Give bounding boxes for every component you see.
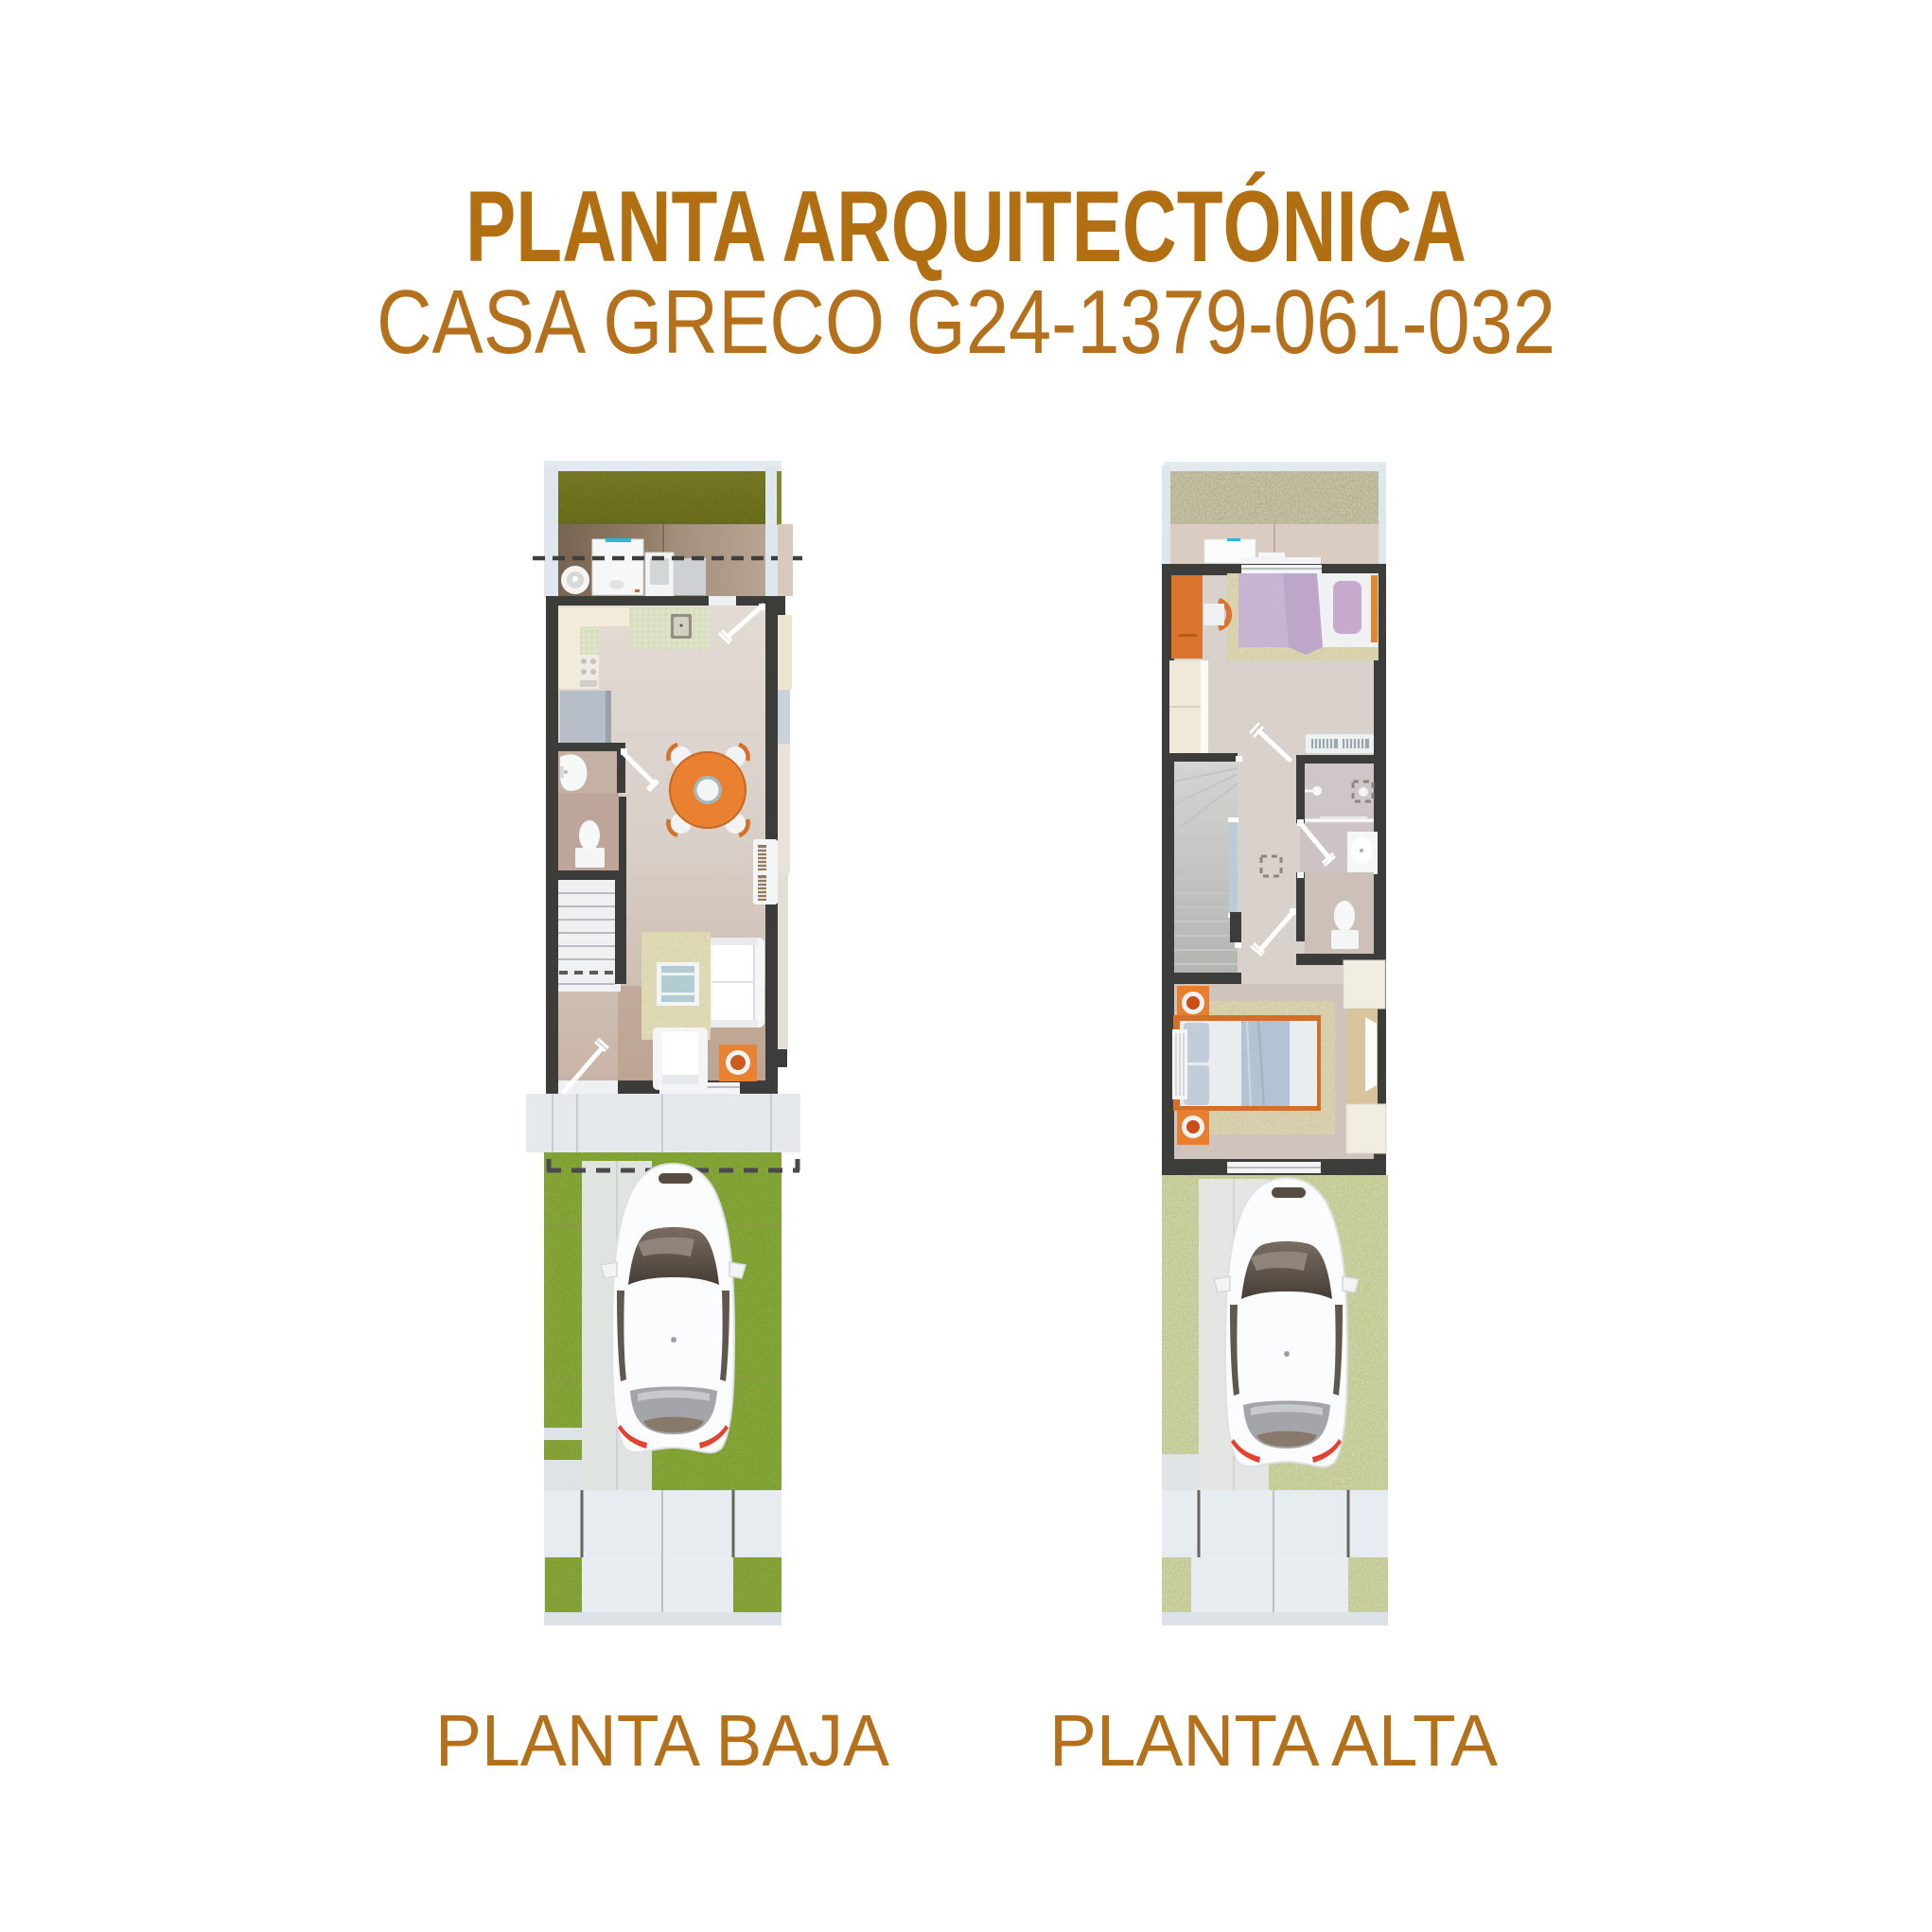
svg-text:PLANTA ARQUITECTÓNICA: PLANTA ARQUITECTÓNICA bbox=[465, 169, 1467, 283]
svg-text:PLANTA BAJA: PLANTA BAJA bbox=[435, 1700, 890, 1782]
svg-text:CASA GRECO G24-1379-061-032: CASA GRECO G24-1379-061-032 bbox=[377, 272, 1555, 373]
svg-text:PLANTA ALTA: PLANTA ALTA bbox=[1049, 1700, 1499, 1782]
